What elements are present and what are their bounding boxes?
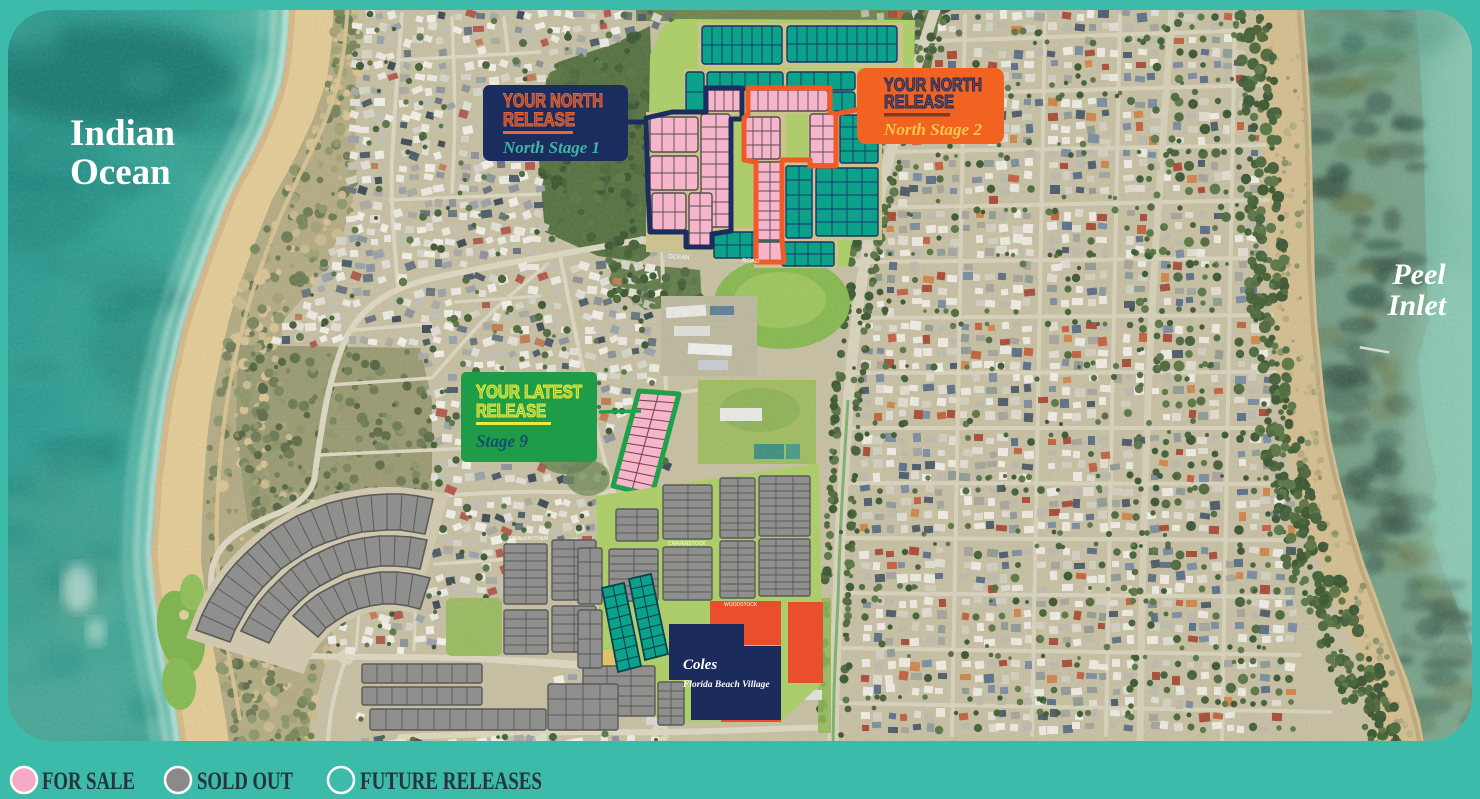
svg-text:Florida Beach Village: Florida Beach Village [682,680,770,690]
svg-text:RELEASE: RELEASE [884,92,954,112]
svg-text:ROAD: ROAD [742,258,760,265]
svg-text:FUTURE RELEASES: FUTURE RELEASES [360,768,542,795]
svg-text:North Stage 2: North Stage 2 [883,120,983,139]
svg-text:SOLD OUT: SOLD OUT [197,768,293,795]
svg-text:Indian: Indian [70,113,175,154]
svg-text:YOUR LATEST: YOUR LATEST [476,382,582,402]
svg-text:Peel: Peel [1391,258,1446,291]
svg-text:Coles: Coles [683,657,717,673]
svg-text:STRALKATCHEM: STRALKATCHEM [508,536,548,542]
svg-text:RELEASE: RELEASE [476,401,546,421]
svg-text:YOUR NORTH: YOUR NORTH [503,91,603,112]
svg-text:WOODSTOCK: WOODSTOCK [724,602,758,608]
svg-text:CRAVENSTOCK: CRAVENSTOCK [668,541,706,547]
svg-text:Ocean: Ocean [70,152,171,193]
svg-text:North Stage 1: North Stage 1 [502,138,600,157]
svg-text:RELEASE: RELEASE [503,110,575,131]
svg-text:Stage 9: Stage 9 [476,431,528,451]
svg-text:Inlet: Inlet [1387,289,1448,322]
svg-text:FOR SALE: FOR SALE [42,768,135,795]
